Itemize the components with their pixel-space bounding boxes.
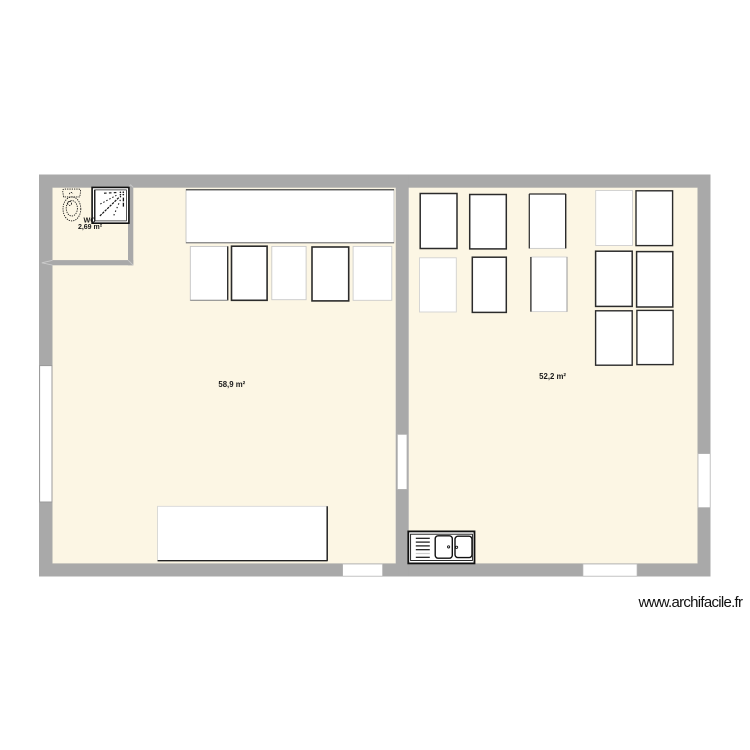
svg-text:www.archifacile.fr: www.archifacile.fr <box>638 594 743 611</box>
svg-text:2,69 m²: 2,69 m² <box>78 224 103 231</box>
svg-text:52,2 m²: 52,2 m² <box>539 372 566 381</box>
svg-text:58,9 m²: 58,9 m² <box>218 380 245 389</box>
